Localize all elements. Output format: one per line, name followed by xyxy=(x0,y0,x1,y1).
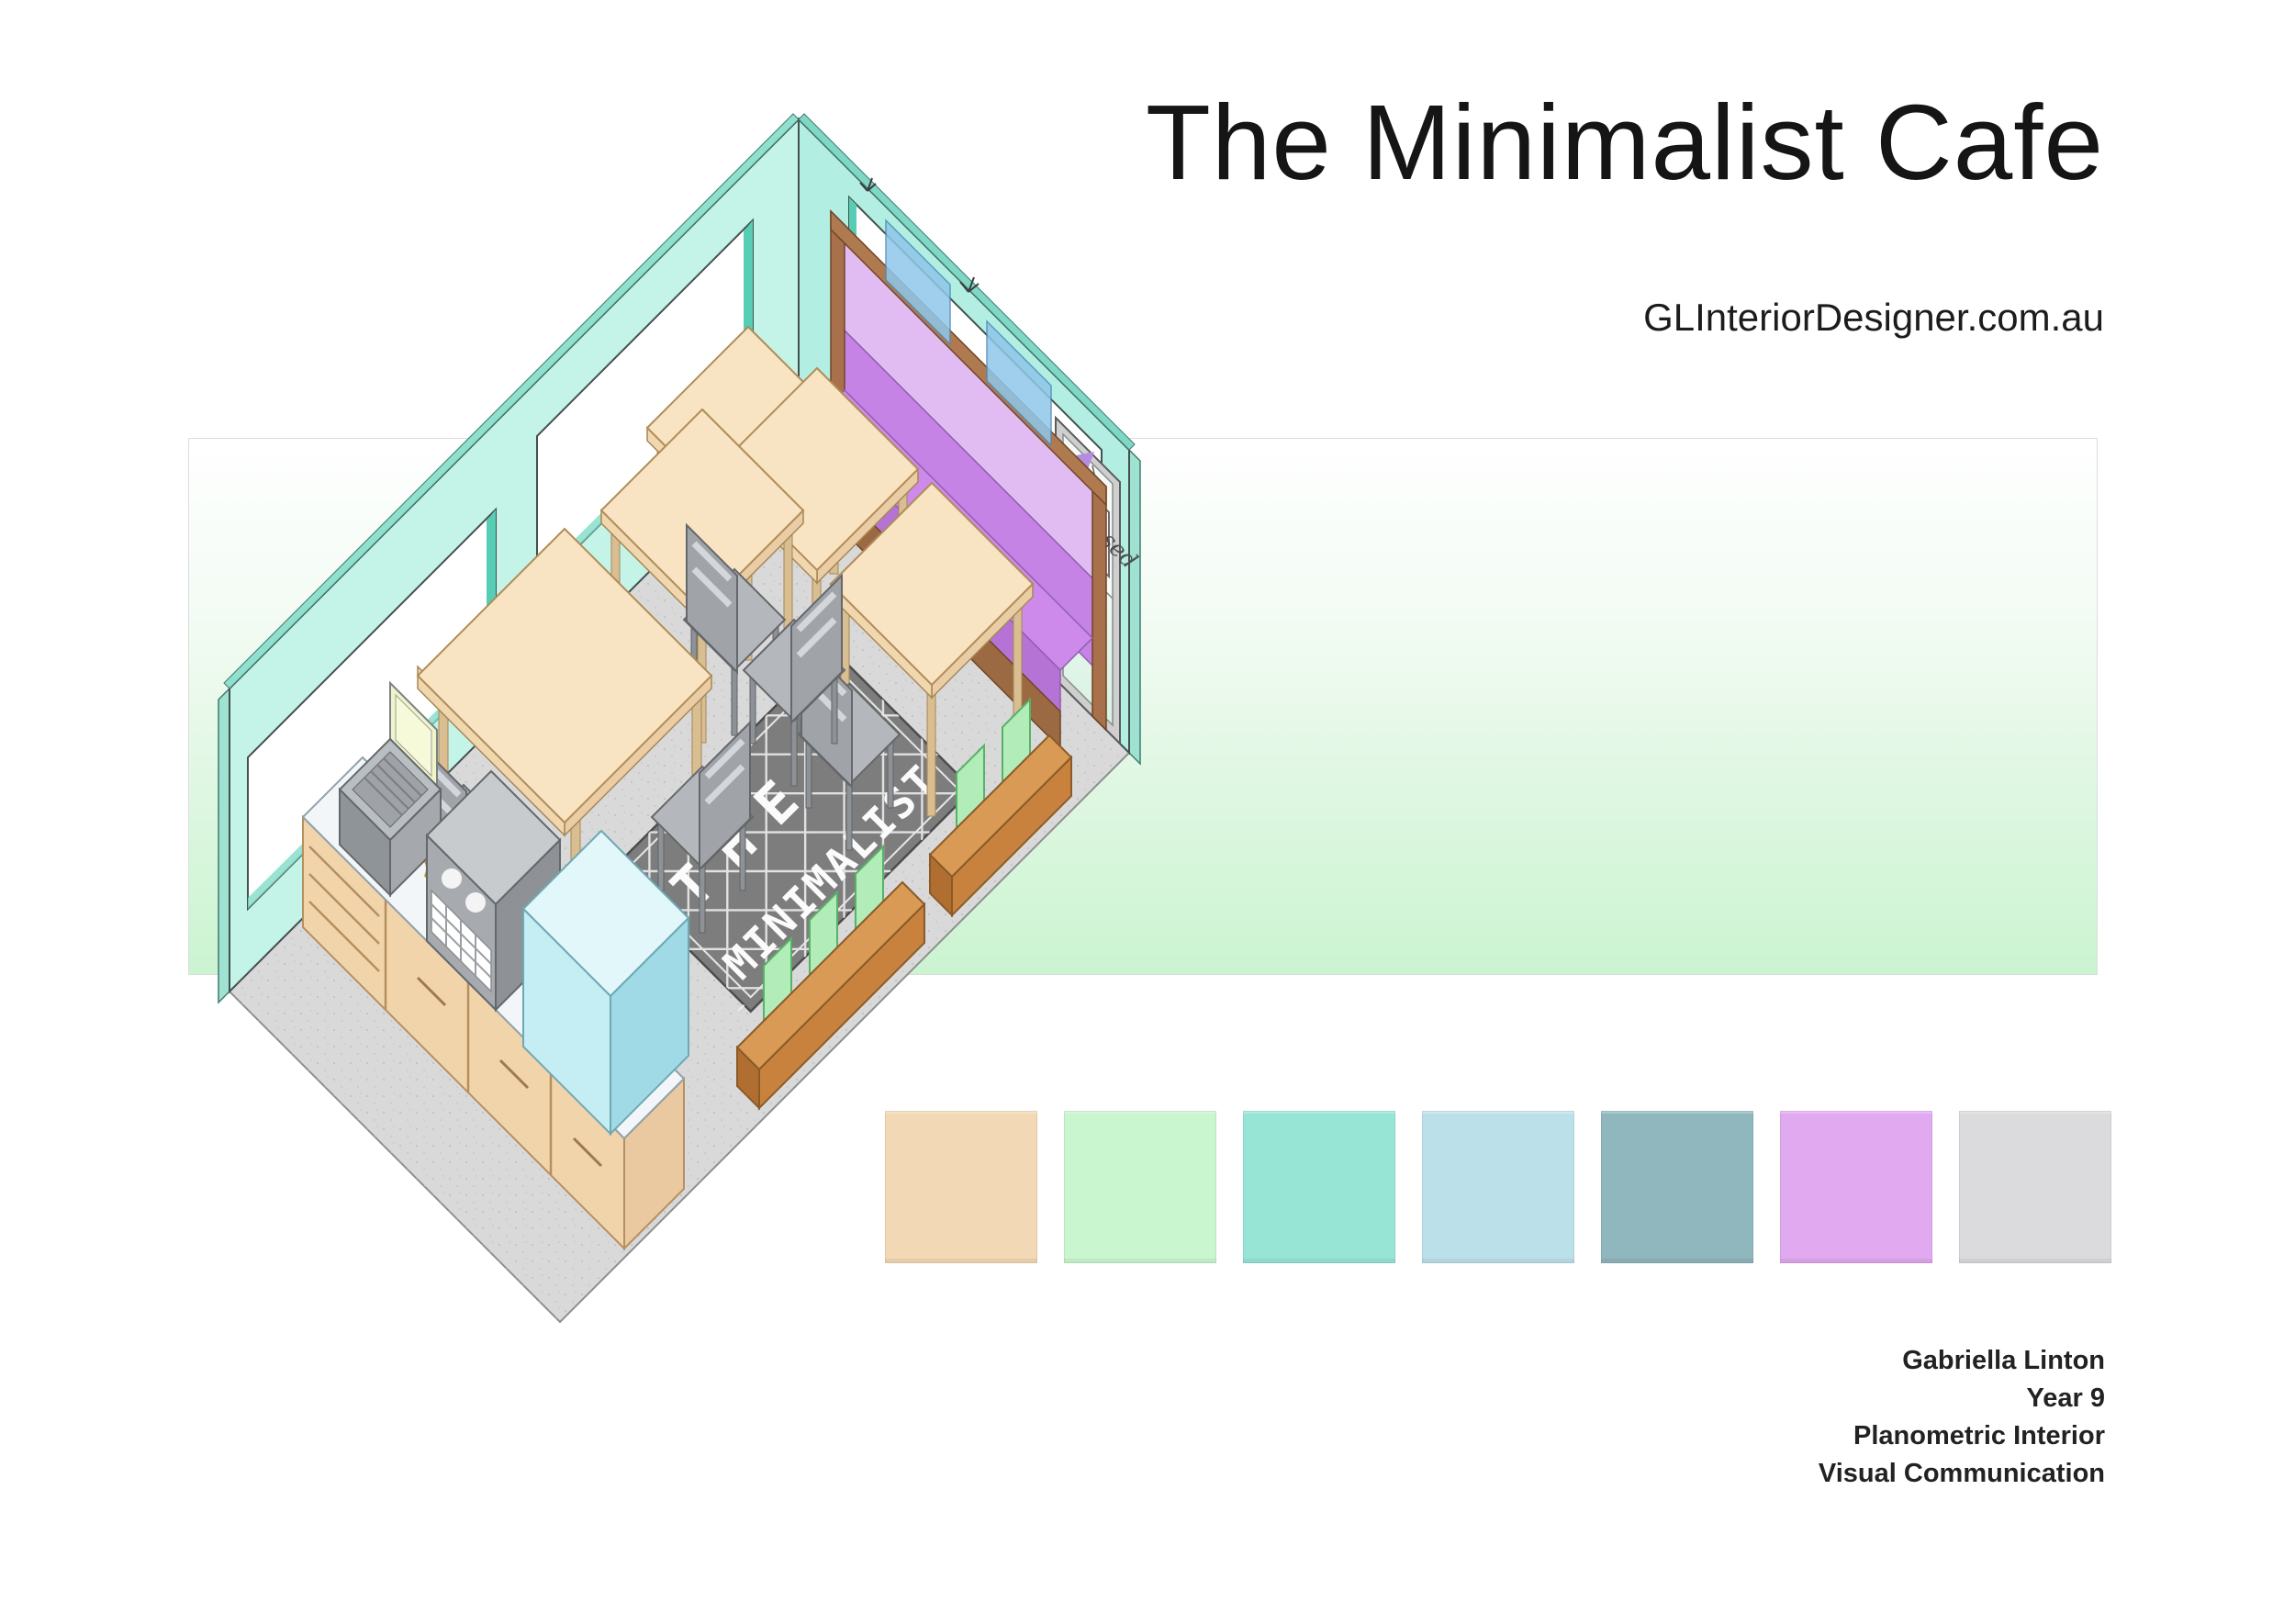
swatch-sand xyxy=(885,1111,1037,1263)
credit-line: Visual Communication xyxy=(1819,1455,2105,1493)
swatch-lavender xyxy=(1780,1111,1932,1263)
credits-block: Gabriella LintonYear 9Planometric Interi… xyxy=(1819,1342,2105,1493)
swatch-powder-blue xyxy=(1422,1111,1574,1263)
page-title: The Minimalist Cafe xyxy=(1146,81,2104,204)
palette-swatches xyxy=(885,1111,2111,1263)
credit-line: Planometric Interior xyxy=(1819,1417,2105,1455)
swatch-slate-teal xyxy=(1601,1111,1753,1263)
page-root: THE MINIMALIST xyxy=(0,0,2295,1624)
swatch-light-gray xyxy=(1959,1111,2111,1263)
swatch-mint-green xyxy=(1064,1111,1216,1263)
credit-line: Year 9 xyxy=(1819,1380,2105,1417)
swatch-aqua xyxy=(1243,1111,1395,1263)
website-url: GLInteriorDesigner.com.au xyxy=(1643,296,2104,340)
credit-line: Gabriella Linton xyxy=(1819,1342,2105,1380)
